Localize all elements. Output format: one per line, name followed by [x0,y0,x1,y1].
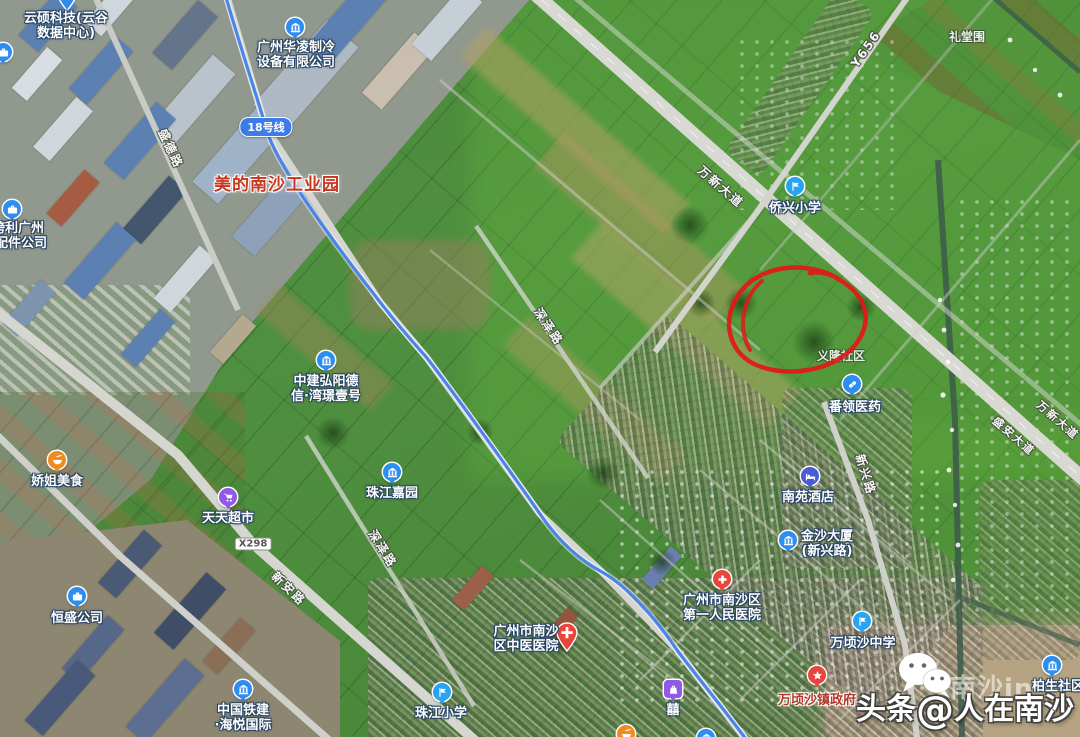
poi-label-nanyuan-hotel[interactable]: 南苑酒店 [782,490,834,505]
watermark-text: 头条@人在南沙 [856,684,1074,732]
poi-marker-renmin-hospital[interactable] [713,570,731,588]
bag-icon [668,684,679,695]
poi-pin-yunshuo[interactable] [57,0,77,12]
metro-casing [225,0,748,737]
poi-label-yunshuo[interactable]: 云硕科技(云谷数据中心) [24,11,108,41]
poi-marker-zhongjian[interactable] [317,351,335,369]
poi-label-hengsheng[interactable]: 恒盛公司 [51,611,103,626]
poi-label-wqs-government[interactable]: 万顷沙镇政府 [778,689,856,708]
poi-label-wqs-middle-school[interactable]: 万顷沙中学 [830,636,895,651]
briefcase-icon [7,204,18,215]
poi-label-jiaojie-food[interactable]: 娇姐美食 [31,474,83,489]
food-icon [52,455,63,466]
poi-marker-qiaoxing-primary[interactable] [786,177,804,195]
briefcase-icon [0,47,9,58]
poi-label-zhujiang-primary[interactable]: 珠江小学 [415,706,467,721]
poi-label-zhongjian[interactable]: 中建弘阳德信·湾璟壹号 [291,374,361,404]
poi-marker-tiantian-market[interactable] [219,488,237,506]
poi-label-hualing[interactable]: 广州华凌制冷设备有限公司 [257,40,335,70]
star-icon [812,670,823,681]
cross-icon [717,574,728,585]
watermark-account: 人在南沙 [954,692,1074,727]
pin-icon [58,0,76,11]
food-icon [621,729,632,737]
poi-marker-kuali[interactable] [3,200,21,218]
metro-line [225,0,748,737]
bed-icon [805,471,816,482]
building-icon [783,535,794,546]
area-label-litangwei[interactable]: 礼堂围 [949,28,985,45]
poi-label-tiantian-market[interactable]: 天天超市 [202,511,254,526]
poi-label-tcm-hospital[interactable]: 广州市南沙区中医医院 [493,624,558,654]
poi-label-xi-shop[interactable]: 囍 [666,703,679,718]
poi-marker-zhujiang-jiayuan[interactable] [383,463,401,481]
briefcase-icon [72,591,83,602]
poi-marker-wqs-middle-school[interactable] [853,612,871,630]
building-icon [387,467,398,478]
poi-marker-jiaojie-food[interactable] [48,451,66,469]
poi-label-renmin-hospital[interactable]: 广州市南沙区第一人民医院 [683,593,761,623]
poi-marker-zhujiang-primary[interactable] [433,683,451,701]
poi-marker-xi-shop[interactable] [664,680,682,698]
flag-icon [790,181,801,192]
poi-label-qiaoxing-primary[interactable]: 侨兴小学 [769,201,821,216]
flag-icon [437,687,448,698]
poi-marker-fanling-pharmacy[interactable] [843,375,861,393]
poi-marker-nanyuan-hotel[interactable] [801,467,819,485]
poi-marker-wqs-government[interactable] [808,666,826,684]
poi-marker-baisheng-community[interactable] [1043,656,1061,674]
building-icon [321,355,332,366]
poi-marker-hengsheng[interactable] [68,587,86,605]
pill-icon [847,379,858,390]
poi-marker-jinsha-tower[interactable] [779,531,797,549]
poi-label-kuali[interactable]: 跨利广州配件公司 [0,221,47,251]
poi-marker-partial-bottom-orange[interactable] [617,725,635,737]
poi-label-tiejian-haiyue[interactable]: 中国铁建·海悦国际 [215,703,272,733]
poi-marker-partial-bottom-blue[interactable] [697,729,715,737]
factory-icon [290,22,301,33]
building-icon [1047,660,1058,671]
building-icon [701,733,712,737]
flag-icon [857,616,868,627]
poi-marker-tiejian-haiyue[interactable] [234,680,252,698]
area-label-yilong-community[interactable]: 义隆社区 [817,347,865,364]
watermark-at: @ [916,688,954,732]
poi-label-jinsha-tower[interactable]: 金沙大厦(新兴路) [801,529,853,559]
poi-pin-tcm-hospital[interactable] [556,622,578,652]
watermark-brand: 头条 [856,692,916,727]
poi-marker-hualing[interactable] [286,18,304,36]
area-label-industrial-park[interactable]: 美的南沙工业园 [214,170,340,195]
satellite-map[interactable]: 盛德路 万新大道 Y656 新兴路 深泽路 深泽路 新安路 盛安大道 万新大道 … [0,0,1080,737]
cart-icon [223,492,234,503]
metro-line-badge[interactable]: 18号线 [239,117,292,137]
poi-marker-partial-left[interactable] [0,43,12,61]
building-icon [238,684,249,695]
poi-label-fanling-pharmacy[interactable]: 番领医药 [829,400,881,415]
poi-label-zhujiang-jiayuan[interactable]: 珠江嘉园 [366,486,418,501]
county-road-badge: X298 [235,538,272,551]
